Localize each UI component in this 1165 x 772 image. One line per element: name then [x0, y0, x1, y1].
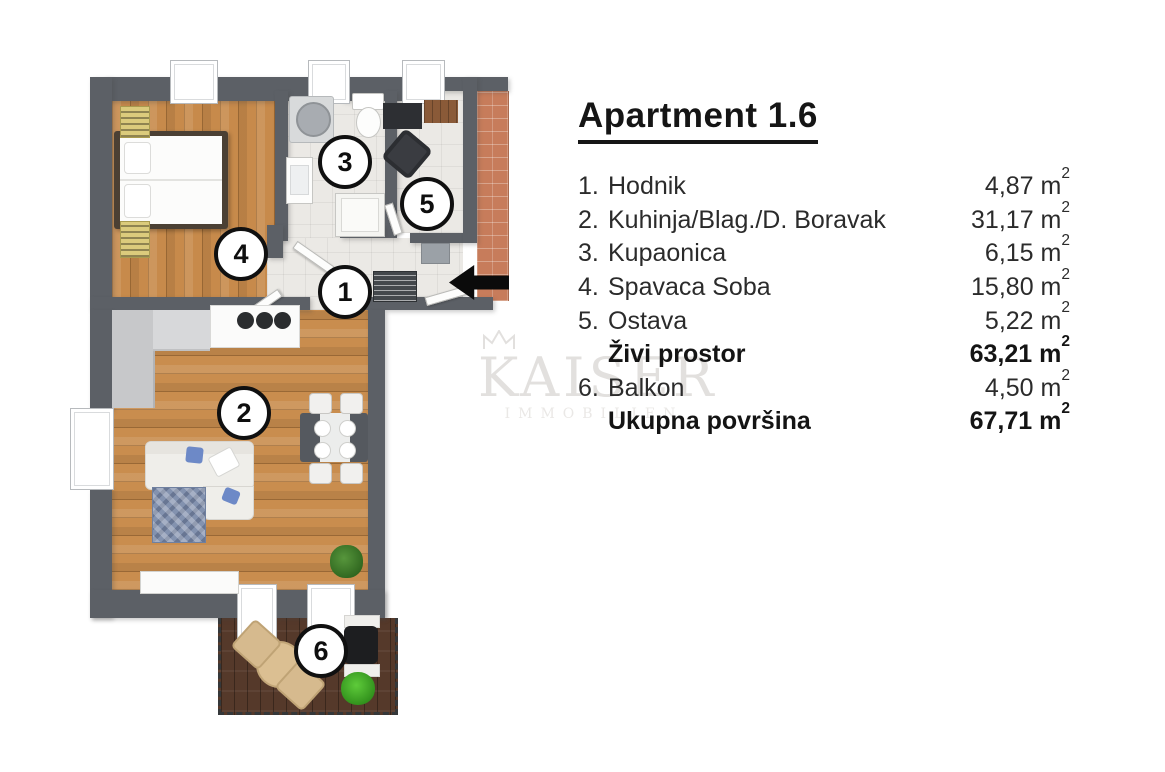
- kitchen-counter: [153, 310, 210, 351]
- shower: [335, 193, 385, 237]
- plate-2: [339, 420, 356, 437]
- sink: [286, 157, 313, 204]
- room-name: Balkon: [608, 374, 985, 403]
- wall-living-right: [368, 310, 385, 618]
- bed-pillow-top: [124, 142, 151, 174]
- page-title: Apartment 1.6: [578, 96, 818, 144]
- storage-desk: [383, 103, 422, 129]
- area-value: 6,15: [985, 239, 1034, 267]
- balcony-bush: [341, 672, 375, 705]
- room-number: 2.: [578, 206, 608, 235]
- area-value: 4,87: [985, 172, 1034, 200]
- room-name: Kupaonica: [608, 239, 985, 268]
- room-area: 6,15 m2: [985, 239, 1070, 268]
- room-number: 1.: [578, 172, 608, 201]
- shower-tray: [341, 198, 379, 232]
- room-list: 1. Hodnik 4,87 m2 2. Kuhinja/Blag./D. Bo…: [578, 170, 1070, 439]
- wall-bedroom-hallway: [267, 225, 283, 258]
- area-unit: m2: [1041, 374, 1070, 402]
- marker-balcony: 6: [294, 624, 348, 678]
- room-name: Spavaca Soba: [608, 273, 971, 302]
- legend-row-kuhinja: 2. Kuhinja/Blag./D. Boravak 31,17 m2: [578, 204, 1070, 238]
- wall-right-upper: [463, 77, 477, 243]
- dining-chair-top-1: [309, 393, 332, 414]
- burner-1: [237, 312, 254, 329]
- storage-window: [402, 60, 445, 104]
- area-value: 15,80: [971, 273, 1034, 301]
- grill: [344, 626, 378, 664]
- legend-row-kupaonica: 3. Kupaonica 6,15 m2: [578, 237, 1070, 271]
- living-room-left-window: [70, 408, 114, 490]
- bedroom-window: [170, 60, 218, 104]
- room-name: Kuhinja/Blag./D. Boravak: [608, 206, 971, 235]
- area-value: 5,22: [985, 307, 1034, 335]
- stairwell-brick-floor: [477, 91, 509, 301]
- marker-living-label: 2: [236, 398, 251, 429]
- marker-bathroom-label: 3: [337, 147, 352, 178]
- area-value: 63,21: [970, 340, 1033, 368]
- legend-row-zivi-prostor: Živi prostor 63,21 m2: [578, 338, 1070, 372]
- wall-bottom-a: [90, 590, 237, 618]
- legend-row-hodnik: 1. Hodnik 4,87 m2: [578, 170, 1070, 204]
- sink-basin: [290, 165, 309, 195]
- legend-row-ostava: 5. Ostava 5,22 m2: [578, 304, 1070, 338]
- room-area: 4,87 m2: [985, 172, 1070, 201]
- area-unit: m2: [1041, 239, 1070, 267]
- potted-plant: [330, 545, 363, 578]
- floor-plan: 1 2 3 4 5 6: [0, 0, 540, 772]
- dining-chair-top-2: [340, 393, 363, 414]
- room-area: 5,22 m2: [985, 307, 1070, 336]
- legend-row-ukupna-povrsina: Ukupna površina 67,71 m2: [578, 405, 1070, 439]
- area-unit: m2: [1041, 273, 1070, 301]
- floor-plan-page: 1 2 3 4 5 6 KAISER IMMOBILIEN Apartment …: [0, 0, 1165, 772]
- bed-pillow-bottom: [124, 184, 151, 218]
- area-value: 31,17: [971, 206, 1034, 234]
- bed-crease: [120, 179, 222, 181]
- room-number: 5.: [578, 307, 608, 336]
- sofa-pillow-blue-1: [185, 446, 204, 464]
- room-area: 31,17 m2: [971, 206, 1070, 235]
- area-unit: m2: [1041, 172, 1070, 200]
- room-number: 6.: [578, 374, 608, 403]
- room-area: 63,21 m2: [970, 340, 1070, 369]
- shoe-cabinet: [421, 243, 450, 264]
- wall-left-upper: [90, 77, 112, 310]
- room-area: 4,50 m2: [985, 374, 1070, 403]
- tv-bench: [140, 571, 239, 594]
- wall-left-middle: [90, 310, 112, 410]
- area-unit: m2: [1039, 340, 1070, 368]
- room-area: 67,71 m2: [970, 407, 1070, 436]
- marker-balcony-label: 6: [313, 636, 328, 667]
- dining-chair-bottom-2: [340, 463, 363, 484]
- wall-bottom-mid: [275, 590, 308, 618]
- room-name: Hodnik: [608, 172, 985, 201]
- marker-storage-label: 5: [419, 189, 434, 220]
- wall-bottom-b: [355, 590, 385, 618]
- plate-1: [314, 420, 331, 437]
- legend-row-balkon: 6. Balkon 4,50 m2: [578, 372, 1070, 406]
- marker-hallway-label: 1: [337, 277, 352, 308]
- legend: Apartment 1.6 1. Hodnik 4,87 m2 2. Kuhin…: [578, 96, 1070, 439]
- toilet-bowl: [356, 107, 381, 138]
- radiator-bottom: [120, 221, 150, 258]
- area-value: 67,71: [970, 407, 1033, 435]
- rug: [152, 487, 206, 543]
- room-number: 4.: [578, 273, 608, 302]
- marker-bedroom-label: 4: [233, 239, 248, 270]
- room-name: Živi prostor: [608, 340, 970, 369]
- marker-storage: 5: [400, 177, 454, 231]
- burner-3: [274, 312, 291, 329]
- marker-hallway: 1: [318, 265, 372, 319]
- radiator-top: [120, 106, 150, 138]
- room-area: 15,80 m2: [971, 273, 1070, 302]
- room-name: Ostava: [608, 307, 985, 336]
- dining-chair-bottom-1: [309, 463, 332, 484]
- legend-row-spavaca-soba: 4. Spavaca Soba 15,80 m2: [578, 271, 1070, 305]
- area-unit: m2: [1041, 206, 1070, 234]
- area-value: 4,50: [985, 374, 1034, 402]
- burner-2: [256, 312, 273, 329]
- storage-shelf: [424, 100, 458, 123]
- bathroom-door-threshold: [288, 225, 340, 238]
- wall-top-a: [103, 77, 173, 101]
- washing-machine-drum: [296, 102, 331, 137]
- kitchen-cabinet-left: [112, 310, 155, 408]
- room-number: 3.: [578, 239, 608, 268]
- area-unit: m2: [1041, 307, 1070, 335]
- room-name: Ukupna površina: [608, 407, 970, 436]
- area-unit: m2: [1039, 407, 1070, 435]
- plate-3: [314, 442, 331, 459]
- plate-4: [339, 442, 356, 459]
- marker-living: 2: [217, 386, 271, 440]
- doormat: [373, 271, 417, 302]
- wall-storage-bottom: [410, 233, 463, 243]
- marker-bathroom: 3: [318, 135, 372, 189]
- marker-bedroom: 4: [214, 227, 268, 281]
